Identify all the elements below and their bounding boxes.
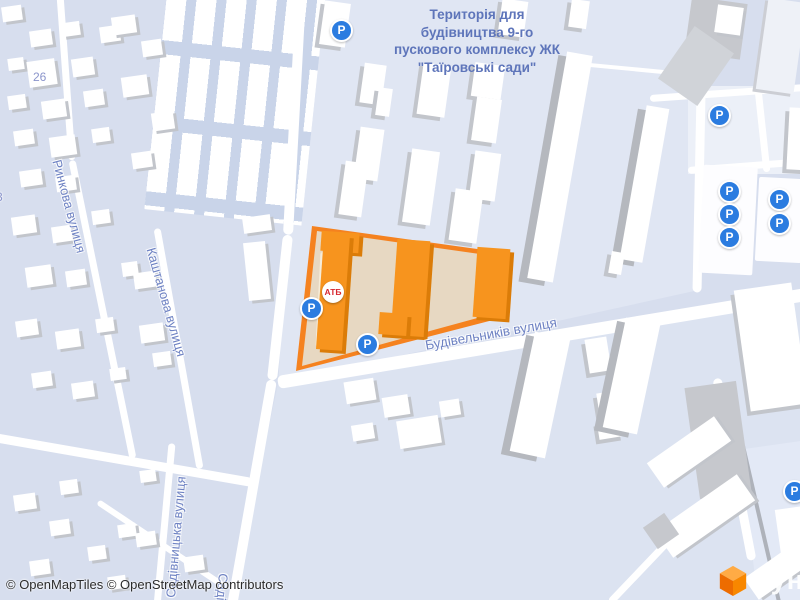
map-canvas[interactable]: Територія для будівництва 9-го пускового… bbox=[0, 0, 800, 600]
building bbox=[714, 4, 744, 35]
building bbox=[29, 29, 53, 48]
building bbox=[91, 127, 111, 143]
parking-icon[interactable]: P bbox=[330, 19, 353, 42]
building bbox=[121, 74, 150, 97]
parking-icon[interactable]: P bbox=[768, 212, 791, 235]
building bbox=[91, 209, 111, 225]
parking-icon[interactable]: P bbox=[356, 333, 379, 356]
map-attribution[interactable]: © OpenMapTiles © OpenStreetMap contribut… bbox=[6, 577, 283, 592]
building bbox=[242, 214, 272, 234]
building bbox=[83, 89, 105, 108]
building bbox=[343, 378, 376, 404]
house-number-26: 26 bbox=[33, 70, 46, 84]
parking-icon[interactable]: P bbox=[300, 297, 323, 320]
building bbox=[109, 367, 127, 381]
road bbox=[69, 159, 137, 458]
building bbox=[25, 264, 54, 287]
building bbox=[41, 98, 67, 119]
building bbox=[13, 129, 35, 147]
building bbox=[139, 469, 157, 483]
building bbox=[151, 111, 175, 132]
building bbox=[141, 39, 163, 58]
parking-icon[interactable]: P bbox=[708, 104, 731, 127]
building bbox=[243, 241, 271, 301]
building bbox=[29, 559, 51, 577]
house-number-3: 3 bbox=[0, 190, 3, 204]
building bbox=[49, 519, 71, 537]
building bbox=[59, 479, 79, 495]
building bbox=[378, 312, 407, 336]
building bbox=[183, 555, 205, 573]
building bbox=[15, 319, 39, 338]
building bbox=[11, 214, 37, 235]
building bbox=[786, 107, 800, 170]
building bbox=[61, 21, 81, 37]
parking-icon[interactable]: P bbox=[718, 226, 741, 249]
building bbox=[95, 317, 115, 333]
building bbox=[351, 422, 375, 441]
building bbox=[71, 381, 95, 400]
lun-cube-icon bbox=[717, 563, 749, 597]
building bbox=[473, 247, 511, 319]
parking-icon[interactable]: P bbox=[768, 188, 791, 211]
building bbox=[111, 14, 137, 35]
lun-logo[interactable]: лун bbox=[717, 563, 800, 597]
territory-label: Територія для будівництва 9-го пускового… bbox=[393, 6, 561, 76]
building bbox=[756, 0, 800, 94]
lun-logo-text: лун bbox=[753, 565, 800, 596]
atb-store-marker[interactable]: АТБ bbox=[322, 281, 344, 303]
building bbox=[7, 94, 27, 110]
building bbox=[382, 394, 411, 418]
building bbox=[31, 371, 53, 389]
building bbox=[49, 134, 78, 157]
building bbox=[19, 169, 43, 188]
building bbox=[139, 322, 165, 343]
building bbox=[152, 351, 172, 367]
parking-icon[interactable]: P bbox=[718, 180, 741, 203]
parking-icon[interactable]: P bbox=[783, 480, 800, 503]
building bbox=[1, 5, 23, 23]
building bbox=[13, 493, 37, 512]
building bbox=[439, 399, 461, 418]
building bbox=[7, 57, 25, 71]
building bbox=[65, 269, 87, 288]
building bbox=[135, 531, 157, 548]
building bbox=[55, 328, 81, 349]
building bbox=[71, 57, 95, 78]
building bbox=[131, 151, 153, 170]
parking-icon[interactable]: P bbox=[718, 203, 741, 226]
building bbox=[117, 523, 137, 538]
building bbox=[87, 545, 107, 561]
